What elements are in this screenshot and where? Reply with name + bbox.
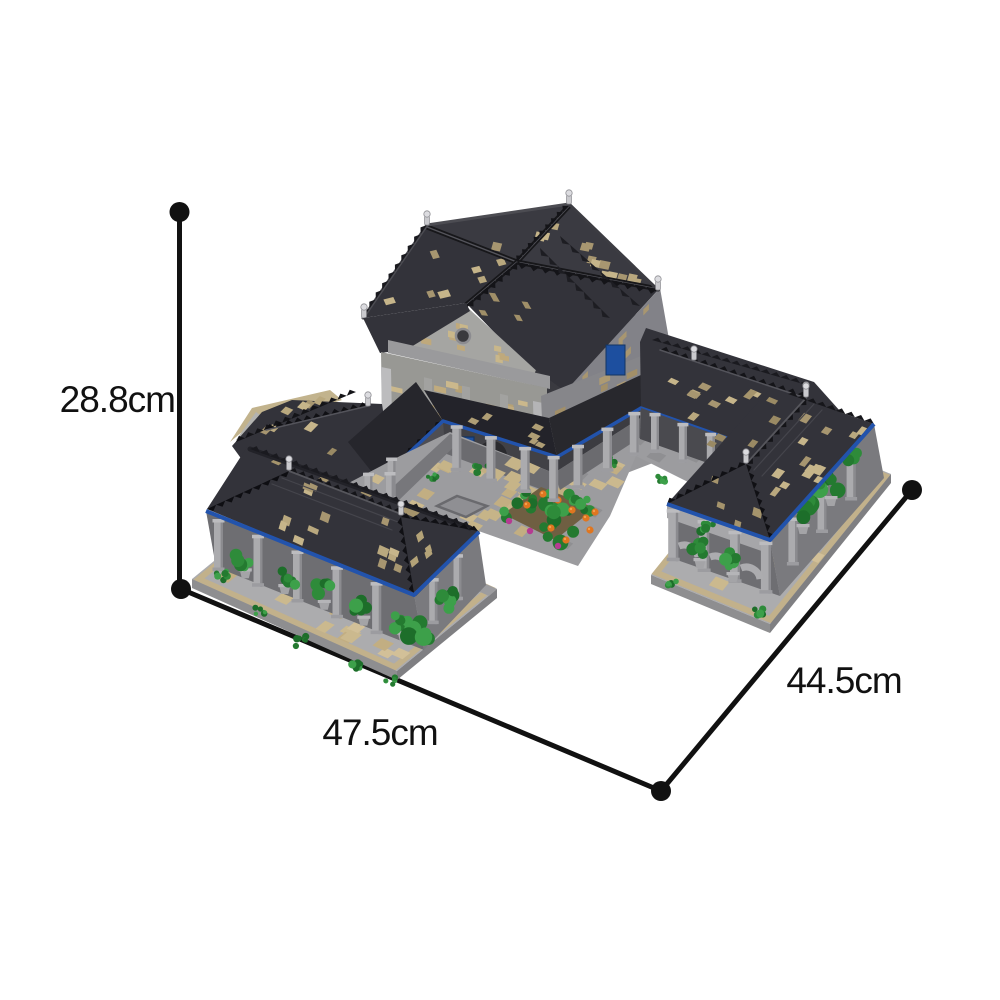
svg-text:47.5cm: 47.5cm xyxy=(322,712,437,753)
svg-text:28.8cm: 28.8cm xyxy=(60,379,175,420)
svg-text:44.5cm: 44.5cm xyxy=(786,660,901,701)
